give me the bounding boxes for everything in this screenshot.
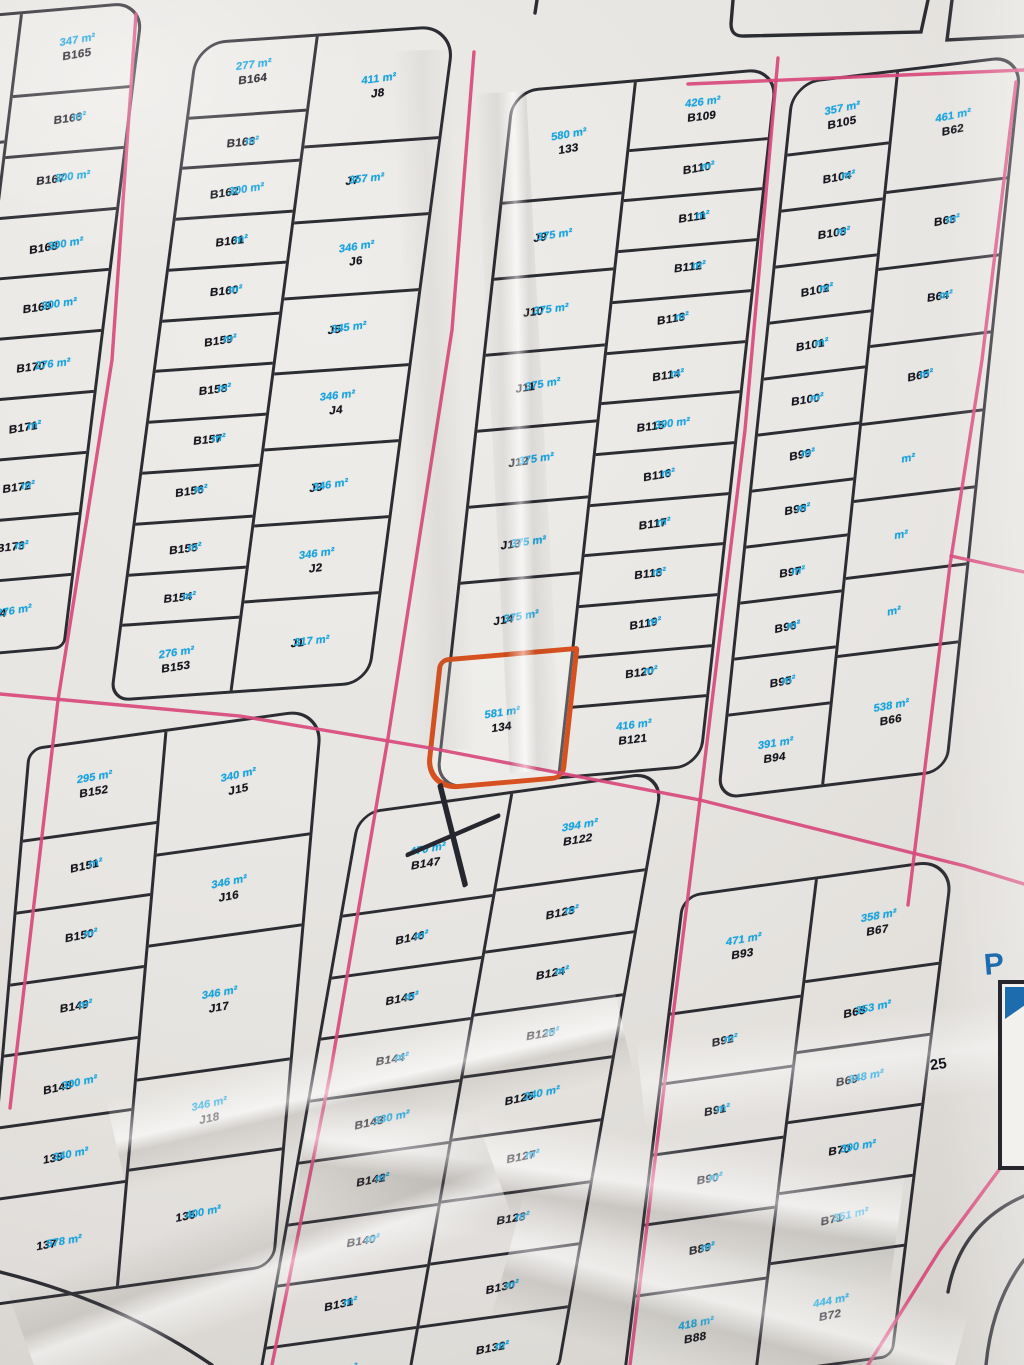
- parcel-area-label: m²: [188, 539, 202, 553]
- parcel-area-label: m²: [670, 366, 684, 380]
- parcel-area-label: 300 m²: [41, 295, 77, 312]
- parcel-area-label: 300 m²: [48, 235, 84, 253]
- parcel-id-label: J15: [228, 781, 248, 797]
- parcel-area-label: 461 m²: [935, 106, 971, 125]
- parcel-B160: B160m²: [162, 264, 286, 323]
- parcel-J7: J7357 m²: [294, 139, 438, 224]
- parcel-area-label: 346 m²: [192, 1094, 227, 1114]
- parcel-id-label: J8: [371, 87, 385, 101]
- parcel-area-label: m²: [716, 1101, 730, 1116]
- parcel-area-label: 390 m²: [840, 1137, 877, 1155]
- parcel-area-label: m²: [544, 1025, 560, 1039]
- parcel-area-label: m²: [887, 604, 901, 619]
- parcel-B159: B159m²: [155, 314, 279, 373]
- parcel-B156: B156m²: [135, 467, 259, 526]
- parcel-area-label: m²: [901, 452, 915, 466]
- block-top-second: 277 m²B164B163m²B162300 m²B161m²B160m²B1…: [109, 24, 456, 702]
- parcel-area-label: m²: [661, 465, 675, 479]
- parcel-B164: 277 m²B164: [189, 37, 316, 120]
- parcel-area-label: m²: [245, 133, 260, 146]
- parcel-id-label: B165: [62, 47, 91, 64]
- parcel-B168: B168300 m²: [0, 210, 116, 281]
- parcel-area-label: m²: [802, 445, 816, 460]
- parcel-id-label: B153: [161, 659, 190, 675]
- parcel-area-label: m²: [652, 565, 666, 579]
- parcel-area-label: 471 m²: [725, 930, 762, 948]
- parcel-area-label: 400 m²: [186, 1203, 222, 1222]
- parcel-area-label: 353 m²: [856, 997, 892, 1017]
- parcel-area-label: m²: [194, 482, 208, 496]
- parcel-B170: B170276 m²: [0, 332, 101, 403]
- parcel-area-label: m²: [554, 963, 569, 978]
- parcel-area-label: m²: [211, 431, 226, 444]
- parcel-J6: 346 m²J6: [284, 215, 428, 300]
- parcel-137: 137578 m²: [0, 1183, 125, 1305]
- parcel-area-label: m²: [797, 500, 811, 514]
- distance-label: 25: [929, 1055, 948, 1074]
- parcel-B153: B153276 m²: [113, 619, 240, 699]
- parcel-area-label: m²: [939, 288, 953, 302]
- parcel-id-label: B152: [79, 784, 108, 801]
- block-bottom-left: 295 m²B152B151m²B150m²B149m²B148300 m²13…: [0, 707, 324, 1308]
- parcel-B167: B167300 m²: [0, 149, 123, 220]
- parcel-id-label: B122: [562, 832, 593, 849]
- parcel-id-label: B67: [866, 923, 889, 939]
- parcel-area-label: m²: [404, 988, 419, 1003]
- parcel-id-label: B93: [730, 946, 753, 962]
- partial-block-outline: [731, 0, 928, 36]
- parcel-B169: B169300 m²: [0, 271, 108, 342]
- parcel-J1: J1317 m²: [233, 594, 379, 691]
- parcel-area-label: m²: [647, 614, 661, 628]
- parcel-id-label: B109: [687, 109, 717, 125]
- parcel-area-label: m²: [791, 563, 805, 577]
- parcel-area-label: 418 m²: [677, 1315, 713, 1334]
- parcel-area-label: m²: [228, 282, 243, 295]
- parcel-area-label: m²: [696, 208, 710, 222]
- plat-map-photo: 347 m²B165B166m²B167300 m²B168300 m²B169…: [0, 0, 1024, 1365]
- parcel-area-label: m²: [72, 109, 86, 123]
- parcel-area-label: m²: [709, 1170, 724, 1184]
- parcel-area-label: 351 m²: [833, 1205, 869, 1225]
- parcel-area-label: 390 m²: [654, 415, 690, 431]
- parcel-area-label: 391 m²: [757, 734, 793, 752]
- parcel-id-label: J2: [309, 562, 323, 576]
- rejected-cross-mark: [394, 774, 511, 895]
- parcel-area-label: m²: [343, 1294, 358, 1309]
- parcel-area-label: 346 m²: [299, 545, 335, 562]
- parcel-B174: B174276 m²: [0, 576, 71, 656]
- parcel-B158: B158m²: [149, 365, 273, 424]
- parcel-area-label: m²: [14, 538, 29, 552]
- parcel-B109: 426 m²B109: [629, 70, 775, 152]
- parcel-id-label: 134: [491, 720, 512, 735]
- parcel-id-label: B121: [618, 733, 648, 749]
- parcel-area-label: m²: [234, 232, 248, 246]
- parcel-area-label: m²: [89, 855, 103, 870]
- parcel-area-label: m²: [946, 211, 960, 225]
- parcel-J10: J10375 m²: [486, 271, 614, 357]
- legend-triangle-icon: [1005, 987, 1024, 1019]
- parcel-area-label: m²: [414, 928, 429, 943]
- parcel-area-label: m²: [375, 1170, 390, 1185]
- parcel-area-label: 330 m²: [374, 1107, 411, 1127]
- parcel-133: 580 m²133: [502, 82, 634, 205]
- parcel-area-label: 300 m²: [62, 1072, 97, 1092]
- parcel-id-label: J4: [329, 404, 343, 417]
- parcel-B162: B162300 m²: [175, 162, 299, 221]
- parcel-J17: 346 m²J17: [137, 926, 302, 1081]
- parcel-J8: 411 m²J8: [304, 27, 453, 148]
- partial-block-outline: [535, 0, 537, 13]
- parcel-area-label: m²: [675, 309, 689, 323]
- block-top-left-column-2: 347 m²B165B166m²B167300 m²B168300 m²B169…: [0, 4, 141, 656]
- parcel-B94: B94391 m²: [720, 705, 830, 797]
- parcel-area-label: 538 m²: [873, 697, 909, 715]
- parcel-area-label: m²: [643, 664, 657, 678]
- partial-block-outline: [947, 0, 1024, 40]
- parcel-B157: B157m²: [142, 416, 266, 475]
- parcel-id-label: B66: [880, 713, 903, 729]
- parcel-id-label: J18: [199, 1111, 219, 1127]
- parcel-area-label: m²: [20, 478, 34, 492]
- parcel-area-label: 346 m²: [313, 475, 349, 492]
- parcel-area-label: 346 m²: [202, 984, 238, 1002]
- parcel-J12: J12375 m²: [469, 423, 597, 509]
- parcel-area-label: 375 m²: [525, 375, 561, 393]
- parcel-area-label: 348 m²: [848, 1067, 884, 1086]
- parcel-area-label: 426 m²: [685, 94, 721, 110]
- parcel-area-label: 240 m²: [523, 1083, 560, 1103]
- parcel-area-label: 375 m²: [537, 226, 573, 243]
- parcel-area-label: m²: [656, 515, 670, 529]
- parcel-area-label: m²: [820, 280, 834, 295]
- parcel-J2: 346 m²J2: [244, 518, 388, 603]
- block-top-middle: 580 m²133J9375 m²J10375 m²J11375 m²J1237…: [435, 67, 779, 790]
- corner-letter: P: [983, 947, 1006, 983]
- parcel-id-label: 133: [558, 142, 578, 157]
- parcel-area-label: m²: [841, 168, 855, 182]
- parcel-area-label: m²: [701, 158, 715, 172]
- parcel-B166: B166m²: [5, 88, 131, 159]
- parcel-area-label: 416 m²: [616, 717, 652, 733]
- parcel-J13: J13375 m²: [460, 499, 588, 585]
- parcel-id-label: B164: [237, 72, 267, 88]
- parcel-area-label: m²: [223, 331, 237, 345]
- parcel-B163: B163m²: [182, 111, 306, 170]
- parcel-area-label: m²: [724, 1031, 738, 1046]
- parcel-area-label: 346 m²: [339, 238, 375, 255]
- parcel-area-label: m²: [365, 1231, 381, 1245]
- parcel-area-label: m²: [919, 366, 933, 381]
- partial-block-outline: [948, 1196, 1024, 1292]
- parcel-id-label: B88: [683, 1331, 706, 1347]
- parcel-id-label: B94: [763, 750, 786, 765]
- parcel-B72: B72444 m²: [757, 1247, 904, 1365]
- parcel-J5: J5345 m²: [274, 291, 418, 376]
- parcel-J11: J11375 m²: [477, 347, 605, 433]
- parcel-area-label: m²: [217, 381, 231, 395]
- partial-block-outline: [986, 1260, 1024, 1365]
- parcel-area-label: m²: [692, 258, 706, 272]
- parcel-area-label: m²: [894, 528, 908, 542]
- parcel-area-label: 276 m²: [34, 356, 70, 372]
- parcel-area-label: 317 m²: [294, 633, 330, 649]
- block-top-left: 347 m²B165B166m²B167300 m²B168300 m²B169…: [0, 1, 145, 670]
- parcel-J9: J9375 m²: [494, 195, 622, 281]
- parcel-id-label: J16: [219, 889, 239, 905]
- parcel-area-label: 276 m²: [158, 644, 194, 661]
- parcel-B155: B155m²: [129, 517, 253, 576]
- parcel-area-label: 444 m²: [813, 1291, 849, 1310]
- parcel-area-label: m²: [494, 1338, 509, 1353]
- parcel-B62: 461 m²B62: [886, 57, 1019, 193]
- parcel-area-label: 357 m²: [349, 170, 385, 186]
- parcel-area-label: m²: [78, 997, 92, 1011]
- legend-box: [998, 980, 1024, 1170]
- parcel-area-label: m²: [524, 1147, 539, 1162]
- parcel-J4: 346 m²J4: [264, 367, 408, 452]
- parcel-area-label: m²: [394, 1049, 410, 1063]
- parcel-J15: 340 m²J15: [156, 710, 320, 857]
- parcel-area-label: 340 m²: [53, 1144, 89, 1163]
- parcel-B161: B161m²: [169, 213, 293, 272]
- parcel-area-label: 375 m²: [510, 533, 546, 549]
- block-bottom-right: 471 m²B93B92m²B91m²B90m²B89m²B88418 m²35…: [621, 857, 955, 1365]
- parcel-area-label: m²: [564, 902, 579, 917]
- parcel-area-label: 346 m²: [319, 388, 355, 404]
- parcel-area-label: m²: [810, 390, 824, 404]
- parcel-area-label: 330 m²: [321, 1360, 358, 1365]
- parcel-area-label: m²: [701, 1239, 715, 1254]
- parcel-B66: B66538 m²: [824, 643, 958, 784]
- parcel-area-label: 345 m²: [331, 319, 367, 336]
- parcel-B165: 347 m²B165: [13, 4, 142, 98]
- parcel-area-label: 580 m²: [551, 126, 587, 144]
- parcel-area-label: m²: [515, 1208, 531, 1222]
- parcel-B67: 358 m²B67: [805, 861, 951, 984]
- parcel-area-label: 300 m²: [54, 168, 90, 184]
- parcel-area-label: 276 m²: [0, 602, 32, 620]
- parcel-id-label: B62: [942, 122, 964, 138]
- parcel-136: 136400 m²: [119, 1151, 282, 1286]
- parcel-B93: 471 m²B93: [670, 880, 815, 1016]
- parcel-area-label: 375 m²: [533, 301, 569, 317]
- parcel-area-label: 581 m²: [484, 704, 520, 721]
- parcel-area-label: 340 m²: [221, 765, 256, 785]
- parcel-area-label: m²: [182, 589, 197, 602]
- parcel-area-label: m²: [27, 418, 41, 432]
- parcel-area-label: m²: [787, 617, 801, 632]
- parcel-area-label: 375 m²: [503, 607, 539, 625]
- parcel-134: 134581 m²: [424, 646, 580, 792]
- parcel-area-label: 411 m²: [361, 71, 397, 87]
- parcel-area-label: 578 m²: [46, 1232, 82, 1250]
- parcel-area-label: m²: [504, 1277, 519, 1292]
- parcel-B105: 357 m²B105: [787, 72, 896, 156]
- parcel-area-label: m²: [815, 335, 829, 349]
- parcel-B121: B121416 m²: [560, 697, 706, 776]
- parcel-area-label: 358 m²: [860, 907, 897, 925]
- parcel-id-label: B72: [819, 1307, 842, 1323]
- parcel-area-label: m²: [782, 672, 796, 686]
- parcel-area-label: m²: [836, 223, 850, 237]
- parcel-id-label: J6: [349, 255, 363, 269]
- parcel-area-label: 375 m²: [518, 450, 554, 467]
- parcel-id-label: B105: [827, 114, 856, 132]
- parcel-area-label: 300 m²: [229, 180, 265, 197]
- parcel-B154: B154m²: [122, 568, 246, 627]
- parcel-area-label: 346 m²: [211, 872, 247, 891]
- parcel-J3: J3346 m²: [254, 442, 398, 527]
- parcel-id-label: J17: [209, 1000, 230, 1015]
- block-bottom-middle: 470 m²B147B146m²B145m²B144m²B143330 m²B1…: [252, 770, 665, 1365]
- parcel-area-label: m²: [84, 926, 98, 941]
